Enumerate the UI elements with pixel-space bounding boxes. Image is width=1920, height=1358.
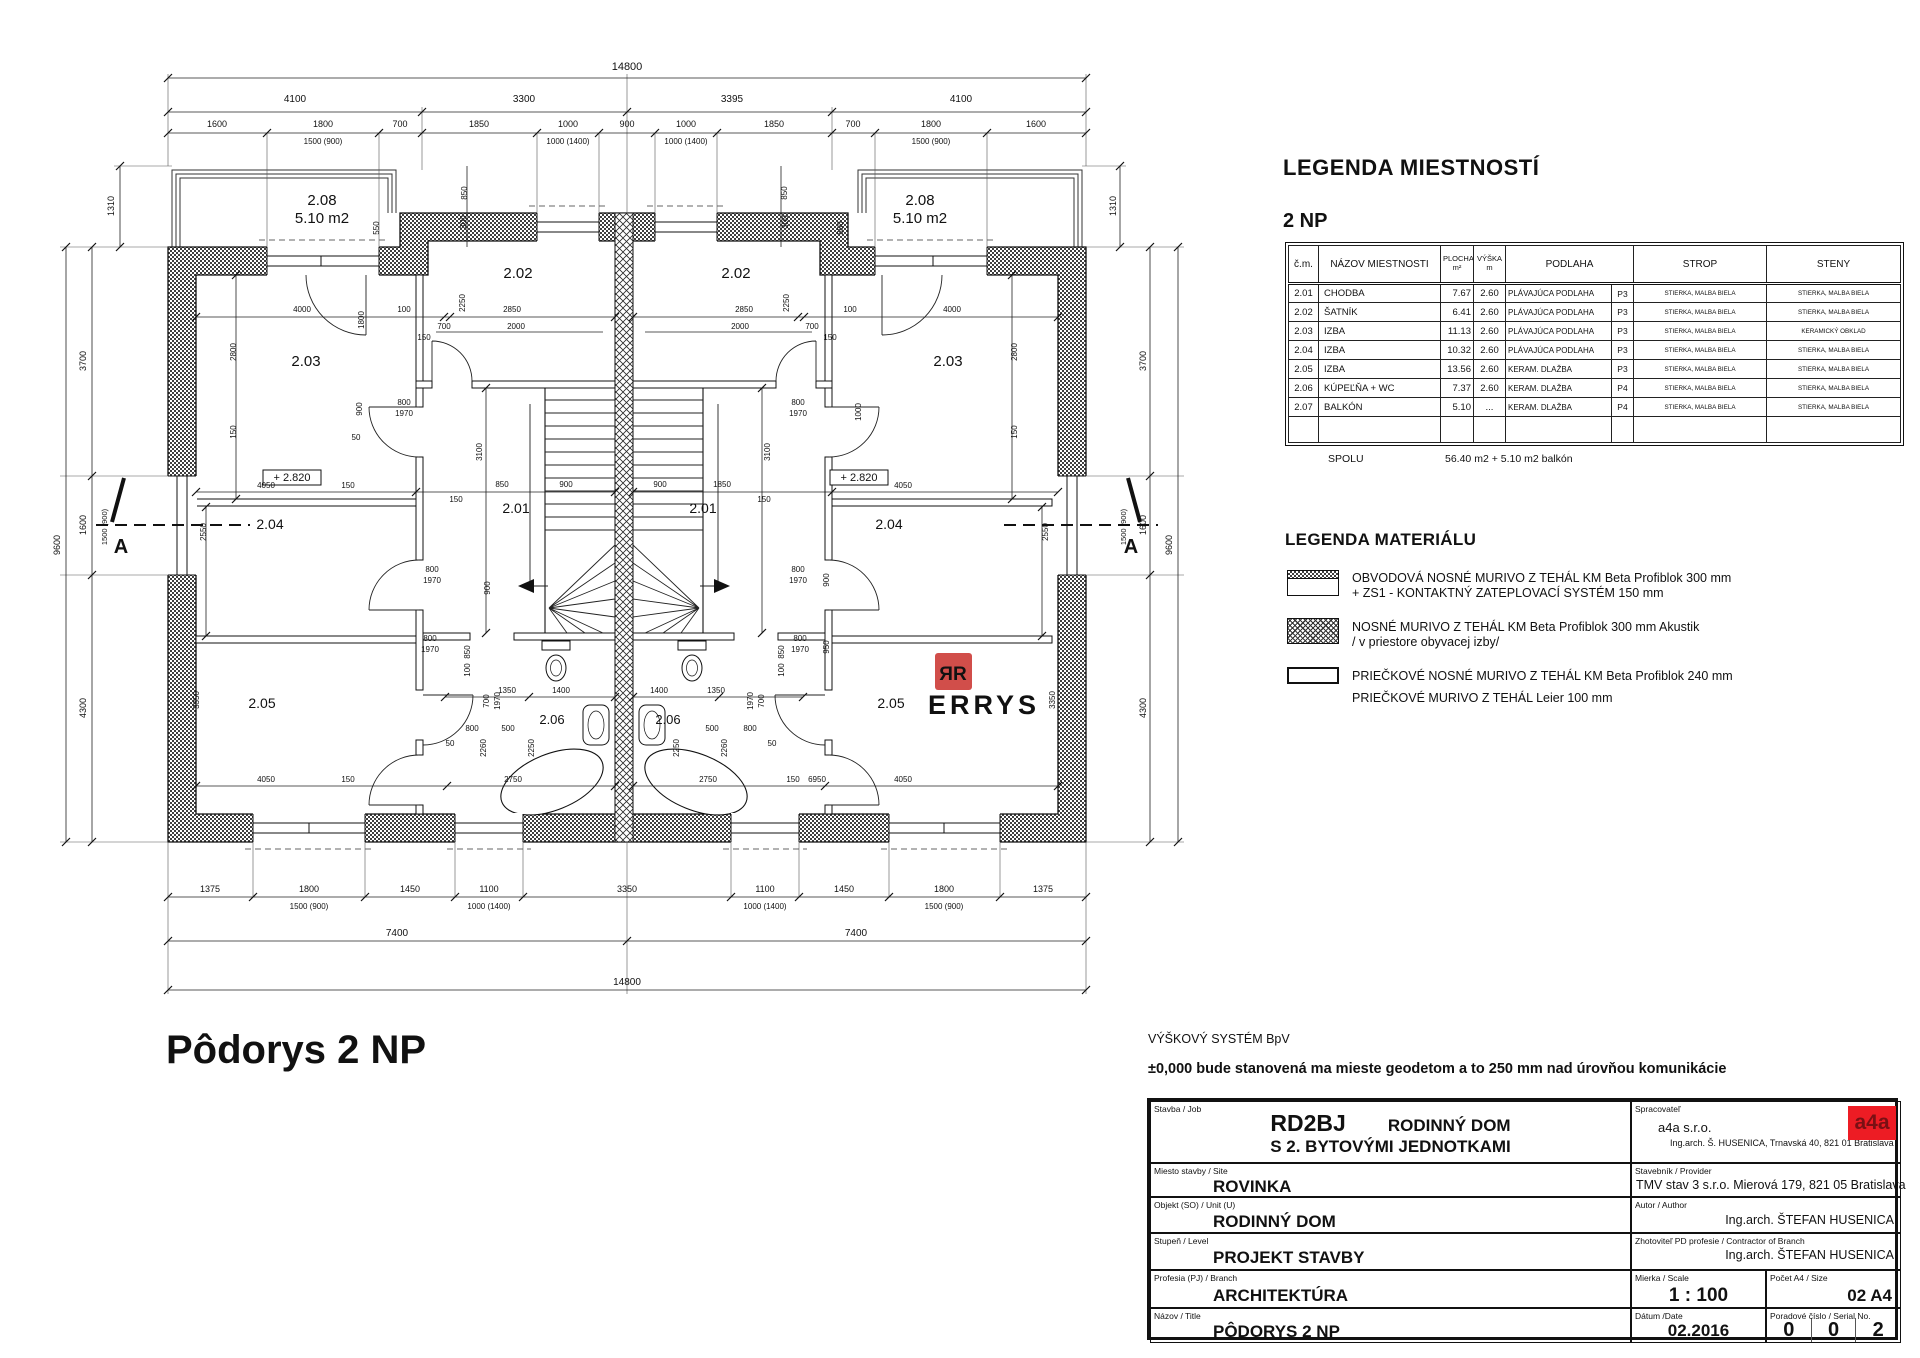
a4a-logo: a4a xyxy=(1848,1106,1896,1140)
plan-label: 2.04 xyxy=(256,516,283,532)
plan-label: 150 xyxy=(449,495,463,504)
plan-label: 50 xyxy=(768,739,777,748)
table-cell: P3 xyxy=(1612,303,1634,322)
plan-label: 1800 xyxy=(357,311,366,329)
stupen-value: PROJEKT STAVBY xyxy=(1151,1234,1630,1268)
plan-label: 150 xyxy=(757,495,771,504)
stairs-right xyxy=(633,400,730,633)
plan-label: 2.02 xyxy=(503,265,532,282)
plan-label: 1000 (1400) xyxy=(467,902,510,911)
table-cell: P3 xyxy=(1612,341,1634,360)
plan-label: 150 xyxy=(341,775,355,784)
table-cell: P3 xyxy=(1612,284,1634,303)
plan-label: 2.03 xyxy=(933,353,962,370)
plan-label: 1100 xyxy=(479,884,498,894)
table-row xyxy=(1289,417,1901,443)
plan-label: 2850 xyxy=(503,305,521,314)
plan-label: 100 xyxy=(777,663,786,677)
plan-label: 1970 xyxy=(789,409,807,418)
table-cell: 2.60 xyxy=(1474,322,1506,341)
plan-label: 2550 xyxy=(1041,523,1050,541)
material-swatch-acoustic xyxy=(1287,618,1339,644)
plan-label: 950 xyxy=(822,640,831,654)
plan-label: 2000 xyxy=(507,322,525,331)
plan-label: 3700 xyxy=(1138,351,1148,371)
serial-digit: 0 xyxy=(1767,1318,1811,1342)
plan-label: 800 xyxy=(791,398,805,407)
serial-digit: 0 xyxy=(1811,1318,1856,1342)
plan-label: 5.10 m2 xyxy=(295,210,349,227)
plan-label: 1100 xyxy=(755,884,774,894)
material-item-1-line-2: + ZS1 - KONTAKTNÝ ZATEPLOVACÍ SYSTÉM 150… xyxy=(1352,586,1664,600)
plan-label: 14800 xyxy=(613,977,641,988)
plan-label: 800 xyxy=(743,724,757,733)
plan-label: 100 xyxy=(843,305,857,314)
stavba-label: Stavba / Job xyxy=(1154,1104,1201,1114)
table-cell: STIERKA, MALBA BIELA xyxy=(1634,360,1767,379)
material-item-2-line-1: NOSNÉ MURIVO Z TEHÁL KM Beta Profiblok 3… xyxy=(1352,620,1699,634)
plan-label: 150 xyxy=(823,333,837,342)
plan-label: 9600 xyxy=(52,535,62,555)
plan-label: 1600 xyxy=(1138,515,1148,535)
plan-title: Pôdorys 2 NP xyxy=(166,1028,426,1073)
table-row: 2.01CHODBA7.672.60PLÁVAJÚCA PODLAHAP3STI… xyxy=(1289,284,1901,303)
table-cell: PLÁVAJÚCA PODLAHA xyxy=(1506,303,1612,322)
plan-label: 2.06 xyxy=(655,712,680,727)
spolu-value: 56.40 m2 + 5.10 m2 balkón xyxy=(1445,453,1573,465)
table-cell: 10.32 xyxy=(1441,341,1474,360)
table-cell: IZBA xyxy=(1319,322,1441,341)
room-legend-subtitle: 2 NP xyxy=(1283,210,1327,233)
table-cell: PLÁVAJÚCA PODLAHA xyxy=(1506,322,1612,341)
material-item-1-line-1: OBVODOVÁ NOSNÉ MURIVO Z TEHÁL KM Beta Pr… xyxy=(1352,571,1731,585)
table-cell: KERAMICKÝ OBKLAD xyxy=(1767,322,1901,341)
plan-label: 1000 xyxy=(558,119,578,129)
plan-label: 1310 xyxy=(106,196,116,216)
material-item-2-line-2: / v priestore obyvacej izby/ xyxy=(1352,635,1499,649)
plan-label: 700 xyxy=(392,119,407,129)
table-cell: ... xyxy=(1474,398,1506,417)
table-cell: 2.01 xyxy=(1289,284,1319,303)
plan-label: 4300 xyxy=(1138,698,1148,718)
table-cell: STIERKA, MALBA BIELA xyxy=(1767,360,1901,379)
col-vyska-l2: m xyxy=(1476,264,1503,273)
plan-label: 1800 xyxy=(934,884,954,894)
plan-label: 800 xyxy=(793,634,807,643)
zero-level-note: ±0,000 bude stanovená ma mieste geodetom… xyxy=(1148,1061,1726,1077)
washbasin-left xyxy=(583,705,609,745)
table-row: 2.06KÚPEĽŇA + WC7.372.60KERAM. DLAŽBAP4S… xyxy=(1289,379,1901,398)
table-cell: P4 xyxy=(1612,379,1634,398)
table-cell: 13.56 xyxy=(1441,360,1474,379)
autor-label: Autor / Author xyxy=(1635,1200,1687,1210)
stairs-left xyxy=(518,400,615,633)
plan-label: 850 xyxy=(777,645,786,659)
toilet-left xyxy=(542,641,570,681)
plan-label: 1350 xyxy=(498,686,516,695)
col-plocha-l2: m² xyxy=(1443,264,1471,273)
objekt-label: Objekt (SO) / Unit (U) xyxy=(1154,1200,1235,1210)
plan-label: 2800 xyxy=(229,343,238,361)
table-cell: KERAM. DLAŽBA xyxy=(1506,360,1612,379)
plan-label: 2.05 xyxy=(877,695,904,711)
table-cell: STIERKA, MALBA BIELA xyxy=(1767,398,1901,417)
table-cell xyxy=(1612,417,1634,443)
plan-label: 2750 xyxy=(504,775,522,784)
plan-label: 3350 xyxy=(192,691,201,709)
col-nazov: NÁZOV MIESTNOSTI xyxy=(1319,246,1441,284)
plan-label: 2.02 xyxy=(721,265,750,282)
plan-label: 850 xyxy=(495,480,509,489)
plan-label: 900 xyxy=(653,480,667,489)
col-steny: STENY xyxy=(1767,246,1901,284)
table-cell: 7.67 xyxy=(1441,284,1474,303)
plan-label: 1970 xyxy=(395,409,413,418)
cell-autor: Autor / Author Ing.arch. ŠTEFAN HUSENICA xyxy=(1631,1197,1901,1233)
plan-label: 700 xyxy=(845,119,860,129)
table-cell: STIERKA, MALBA BIELA xyxy=(1767,379,1901,398)
plan-label: 1500 (900) xyxy=(925,902,964,911)
material-item-3-line-2: PRIEČKOVÉ MURIVO Z TEHÁL Leier 100 mm xyxy=(1352,691,1613,705)
table-row: 2.07BALKÓN5.10...KERAM. DLAŽBAP4STIERKA,… xyxy=(1289,398,1901,417)
plan-label: 3100 xyxy=(475,443,484,461)
table-cell: 2.02 xyxy=(1289,303,1319,322)
poradove-label: Poradové číslo / Serial No. xyxy=(1770,1311,1871,1321)
plan-label: 1800 xyxy=(313,119,333,129)
plan-label: 1310 xyxy=(1108,196,1118,216)
plan-label: 50 xyxy=(446,739,455,748)
table-cell: P4 xyxy=(1612,398,1634,417)
plan-label: 800 xyxy=(791,565,805,574)
plan-label: 1000 (1400) xyxy=(743,902,786,911)
plan-label: 300 xyxy=(459,215,468,229)
plan-label: 9600 xyxy=(1164,535,1174,555)
cell-pocet: Počet A4 / Size 02 A4 xyxy=(1766,1270,1901,1308)
plan-label: 1800 xyxy=(921,119,941,129)
material-legend-title: LEGENDA MATERIÁLU xyxy=(1285,530,1476,550)
plan-label: 850 xyxy=(460,186,469,200)
plan-label: 4100 xyxy=(284,94,307,105)
floor-plan: 1480041003300339541001600180070018501000… xyxy=(0,0,1200,1110)
plan-label: 900 xyxy=(822,573,831,587)
table-cell: 2.05 xyxy=(1289,360,1319,379)
table-cell: 2.60 xyxy=(1474,341,1506,360)
plan-label: 800 xyxy=(397,398,411,407)
table-cell: STIERKA, MALBA BIELA xyxy=(1634,322,1767,341)
plan-label: 14800 xyxy=(612,61,643,73)
cell-datum: Dátum /Date 02.2016 xyxy=(1631,1308,1766,1343)
plan-label: 1850 xyxy=(469,119,489,129)
miesto-label: Miesto stavby / Site xyxy=(1154,1166,1228,1176)
plan-label: 2850 xyxy=(735,305,753,314)
mierka-label: Mierka / Scale xyxy=(1635,1273,1689,1283)
table-cell: 5.10 xyxy=(1441,398,1474,417)
plan-label: 1450 xyxy=(400,884,420,894)
plan-label: 7400 xyxy=(386,928,409,939)
plan-label: 1970 xyxy=(421,645,439,654)
material-swatch-partition xyxy=(1287,667,1339,684)
table-cell: ŠATNÍK xyxy=(1319,303,1441,322)
table-cell: P3 xyxy=(1612,360,1634,379)
plan-label: 2260 xyxy=(720,739,729,757)
plan-label: 700 xyxy=(437,322,451,331)
table-cell xyxy=(1319,417,1441,443)
table-cell: STIERKA, MALBA BIELA xyxy=(1634,398,1767,417)
plan-label: 4100 xyxy=(950,94,973,105)
plan-label: 1600 xyxy=(1026,119,1046,129)
table-cell: 2.60 xyxy=(1474,303,1506,322)
datum-label: Dátum /Date xyxy=(1635,1311,1683,1321)
table-row: 2.05IZBA13.562.60KERAM. DLAŽBAP3STIERKA,… xyxy=(1289,360,1901,379)
plan-label: 2000 xyxy=(731,322,749,331)
room-legend-title: LEGENDA MIESTNOSTÍ xyxy=(1283,155,1539,181)
nazov-value: PÔDORYS 2 NP xyxy=(1151,1309,1630,1342)
table-cell xyxy=(1506,417,1612,443)
cell-mierka: Mierka / Scale 1 : 100 xyxy=(1631,1270,1766,1308)
plan-label: 1400 xyxy=(552,686,570,695)
plan-label: 700 xyxy=(805,322,819,331)
plan-label: 3350 xyxy=(1048,691,1057,709)
plan-label: 1800 xyxy=(299,884,319,894)
plan-label: 4050 xyxy=(894,775,912,784)
plan-label: 1970 xyxy=(423,576,441,585)
table-cell: IZBA xyxy=(1319,341,1441,360)
plan-label: 4000 xyxy=(943,305,961,314)
stavebnik-label: Stavebník / Provider xyxy=(1635,1166,1712,1176)
plan-label: 1400 xyxy=(650,686,668,695)
plan-label: 1600 xyxy=(78,515,88,535)
table-cell: STIERKA, MALBA BIELA xyxy=(1767,303,1901,322)
table-cell: CHODBA xyxy=(1319,284,1441,303)
plan-label: 1000 xyxy=(854,403,863,421)
plan-label: 1000 (1400) xyxy=(546,137,589,146)
table-cell: STIERKA, MALBA BIELA xyxy=(1767,341,1901,360)
plan-label: 700 xyxy=(482,694,491,708)
table-cell: PLÁVAJÚCA PODLAHA xyxy=(1506,341,1612,360)
plan-label: 4050 xyxy=(257,775,275,784)
plan-label: 6950 xyxy=(808,775,826,784)
plan-label: 850 xyxy=(463,645,472,659)
plan-label: 2250 xyxy=(782,294,791,312)
plan-label: 800 xyxy=(423,634,437,643)
plan-label: 1600 xyxy=(207,119,227,129)
plan-label: 150 xyxy=(417,333,431,342)
plan-label: 100 xyxy=(397,305,411,314)
plan-label: 1500 (900) xyxy=(304,137,343,146)
plan-label: 50 xyxy=(352,433,361,442)
plan-label: 1970 xyxy=(791,645,809,654)
plan-label: 2250 xyxy=(458,294,467,312)
plan-label: 900 xyxy=(559,480,573,489)
plan-label: 1970 xyxy=(746,692,755,710)
plan-label: 2250 xyxy=(527,739,536,757)
toilet-right xyxy=(678,641,706,681)
cell-spracovatel: Spracovateľ a4a s.r.o. Ing.arch. Š. HUSE… xyxy=(1631,1101,1901,1163)
table-header-row: č.m. NÁZOV MIESTNOSTI PLOCHA m² VÝŠKA m … xyxy=(1289,246,1901,284)
spracovatel-label: Spracovateľ xyxy=(1635,1104,1680,1114)
plan-label: 150 xyxy=(1010,425,1019,439)
plan-label: 150 xyxy=(229,425,238,439)
table-cell xyxy=(1289,417,1319,443)
watermark-text: ERRYS xyxy=(928,690,1040,720)
balcony-left xyxy=(172,170,396,247)
table-cell xyxy=(1441,417,1474,443)
plan-label: 2.05 xyxy=(248,695,275,711)
plan-label: 550 xyxy=(836,221,845,235)
plan-label: A xyxy=(114,536,128,558)
plan-label: 7400 xyxy=(845,928,868,939)
plan-label: 1375 xyxy=(1033,884,1053,894)
table-cell: 2.07 xyxy=(1289,398,1319,417)
plan-label: 1500 (900) xyxy=(290,902,329,911)
plan-label: 900 xyxy=(483,581,492,595)
col-podlaha: PODLAHA xyxy=(1506,246,1634,284)
plan-label: 4300 xyxy=(78,698,88,718)
plan-label: 2.04 xyxy=(875,516,902,532)
plan-label: 1375 xyxy=(200,884,220,894)
table-cell: 7.37 xyxy=(1441,379,1474,398)
stavba-value-1: RODINNÝ DOM xyxy=(1388,1116,1511,1136)
table-row: 2.04IZBA10.322.60PLÁVAJÚCA PODLAHAP3STIE… xyxy=(1289,341,1901,360)
plan-label: 2250 xyxy=(672,739,681,757)
table-cell: STIERKA, MALBA BIELA xyxy=(1634,284,1767,303)
table-cell: 2.60 xyxy=(1474,379,1506,398)
plan-label: 1000 xyxy=(676,119,696,129)
height-system-note: VÝŠKOVÝ SYSTÉM BpV xyxy=(1148,1032,1290,1046)
plan-label: 3300 xyxy=(513,94,536,105)
plan-label: 5.10 m2 xyxy=(893,210,947,227)
plan-label: A xyxy=(1124,536,1138,558)
watermark-logo-text: ЯR xyxy=(939,664,967,685)
nazov-label: Názov / Title xyxy=(1154,1311,1201,1321)
table-row: 2.02ŠATNÍK6.412.60PLÁVAJÚCA PODLAHAP3STI… xyxy=(1289,303,1901,322)
table-row: 2.03IZBA11.132.60PLÁVAJÚCA PODLAHAP3STIE… xyxy=(1289,322,1901,341)
table-cell: STIERKA, MALBA BIELA xyxy=(1634,303,1767,322)
cell-stupen: Stupeň / Level PROJEKT STAVBY xyxy=(1150,1233,1631,1270)
plan-label: 800 xyxy=(425,565,439,574)
plan-label: 700 xyxy=(757,694,766,708)
plan-label: 1500 (900) xyxy=(100,508,109,545)
table-cell: STIERKA, MALBA BIELA xyxy=(1634,379,1767,398)
plan-label: 150 xyxy=(786,775,800,784)
table-cell: PLÁVAJÚCA PODLAHA xyxy=(1506,284,1612,303)
pocet-label: Počet A4 / Size xyxy=(1770,1273,1828,1283)
stavba-code: RD2BJ xyxy=(1270,1110,1345,1137)
plan-label: 2260 xyxy=(479,739,488,757)
table-cell xyxy=(1634,417,1767,443)
plan-label: 1450 xyxy=(834,884,854,894)
plan-label: 1350 xyxy=(707,686,725,695)
plan-label: 150 xyxy=(341,481,355,490)
profesia-label: Profesia (PJ) / Branch xyxy=(1154,1273,1237,1283)
plan-label: 2.08 xyxy=(905,192,934,209)
table-cell: KERAM. DLAŽBA xyxy=(1506,379,1612,398)
plan-label: 800 xyxy=(465,724,479,733)
material-item-3-line-1: PRIEČKOVÉ NOSNÉ MURIVO Z TEHÁL KM Beta P… xyxy=(1352,669,1733,683)
cell-nazov: Názov / Title PÔDORYS 2 NP xyxy=(1150,1308,1631,1343)
balcony-right xyxy=(858,170,1082,247)
table-cell: BALKÓN xyxy=(1319,398,1441,417)
plan-label: 1850 xyxy=(713,480,731,489)
plan-label: 1500 (900) xyxy=(912,137,951,146)
plan-label: 3100 xyxy=(763,443,772,461)
table-cell: 2.04 xyxy=(1289,341,1319,360)
cell-zhotovitel: Zhotoviteľ PD profesie / Contractor of B… xyxy=(1631,1233,1901,1270)
plan-label: 2800 xyxy=(1010,343,1019,361)
plan-label: 2.01 xyxy=(502,500,529,516)
col-cm: č.m. xyxy=(1289,246,1319,284)
table-cell xyxy=(1474,417,1506,443)
table-cell: 11.13 xyxy=(1441,322,1474,341)
table-cell: 2.03 xyxy=(1289,322,1319,341)
plan-label: + 2.820 xyxy=(840,472,877,484)
zhotovitel-label: Zhotoviteľ PD profesie / Contractor of B… xyxy=(1635,1236,1805,1246)
col-strop: STROP xyxy=(1634,246,1767,284)
party-wall xyxy=(615,213,633,842)
table-cell: P3 xyxy=(1612,322,1634,341)
plan-label: 4050 xyxy=(894,481,912,490)
plan-label: 2750 xyxy=(699,775,717,784)
col-plocha: PLOCHA m² xyxy=(1441,246,1474,284)
plan-label: 2.06 xyxy=(539,712,564,727)
room-table-body: 2.01CHODBA7.672.60PLÁVAJÚCA PODLAHAP3STI… xyxy=(1289,284,1901,443)
material-swatch-exterior xyxy=(1287,570,1339,596)
stupen-label: Stupeň / Level xyxy=(1154,1236,1208,1246)
plan-label: 850 xyxy=(780,186,789,200)
plan-label: 100 xyxy=(463,663,472,677)
room-legend-table: č.m. NÁZOV MIESTNOSTI PLOCHA m² VÝŠKA m … xyxy=(1288,245,1901,443)
plan-label: 1000 (1400) xyxy=(664,137,707,146)
table-cell: 2.06 xyxy=(1289,379,1319,398)
table-cell: KÚPEĽŇA + WC xyxy=(1319,379,1441,398)
table-cell: STIERKA, MALBA BIELA xyxy=(1634,341,1767,360)
serial-number: 002 xyxy=(1767,1318,1900,1342)
plan-label: 1970 xyxy=(789,576,807,585)
cell-stavebnik: Stavebník / Provider TMV stav 3 s.r.o. M… xyxy=(1631,1163,1901,1197)
table-cell: STIERKA, MALBA BIELA xyxy=(1767,284,1901,303)
plan-label: 550 xyxy=(372,221,381,235)
col-vyska: VÝŠKA m xyxy=(1474,246,1506,284)
plan-label: 2550 xyxy=(199,523,208,541)
table-cell: 6.41 xyxy=(1441,303,1474,322)
stavba-value-2: S 2. BYTOVÝMI JEDNOTKAMI xyxy=(1151,1137,1630,1157)
plan-label: 3700 xyxy=(78,351,88,371)
plan-label: 900 xyxy=(355,402,364,416)
spolu-label: SPOLU xyxy=(1328,453,1364,465)
plan-label: 1850 xyxy=(764,119,784,129)
plan-label: + 2.820 xyxy=(273,472,310,484)
title-block: Stavba / Job RD2BJ RODINNÝ DOM S 2. BYTO… xyxy=(1147,1098,1898,1340)
cell-stavba: Stavba / Job RD2BJ RODINNÝ DOM S 2. BYTO… xyxy=(1150,1101,1631,1163)
table-cell xyxy=(1767,417,1901,443)
plan-label: 500 xyxy=(705,724,719,733)
plan-label: 2.08 xyxy=(307,192,336,209)
plan-label: 3350 xyxy=(617,884,637,894)
plan-label: 2.03 xyxy=(291,353,320,370)
plan-label: 500 xyxy=(501,724,515,733)
table-cell: 2.60 xyxy=(1474,284,1506,303)
plan-label: 300 xyxy=(781,215,790,229)
serial-digit: 2 xyxy=(1855,1318,1900,1342)
cell-poradove: Poradové číslo / Serial No. 002 xyxy=(1766,1308,1901,1343)
table-cell: IZBA xyxy=(1319,360,1441,379)
cell-profesia: Profesia (PJ) / Branch ARCHITEKTÚRA xyxy=(1150,1270,1631,1308)
plan-label: 4000 xyxy=(293,305,311,314)
plan-label: 4050 xyxy=(257,481,275,490)
cell-miesto: Miesto stavby / Site ROVINKA xyxy=(1150,1163,1631,1197)
plan-label: 2.01 xyxy=(689,500,716,516)
plan-label: 3395 xyxy=(721,94,744,105)
